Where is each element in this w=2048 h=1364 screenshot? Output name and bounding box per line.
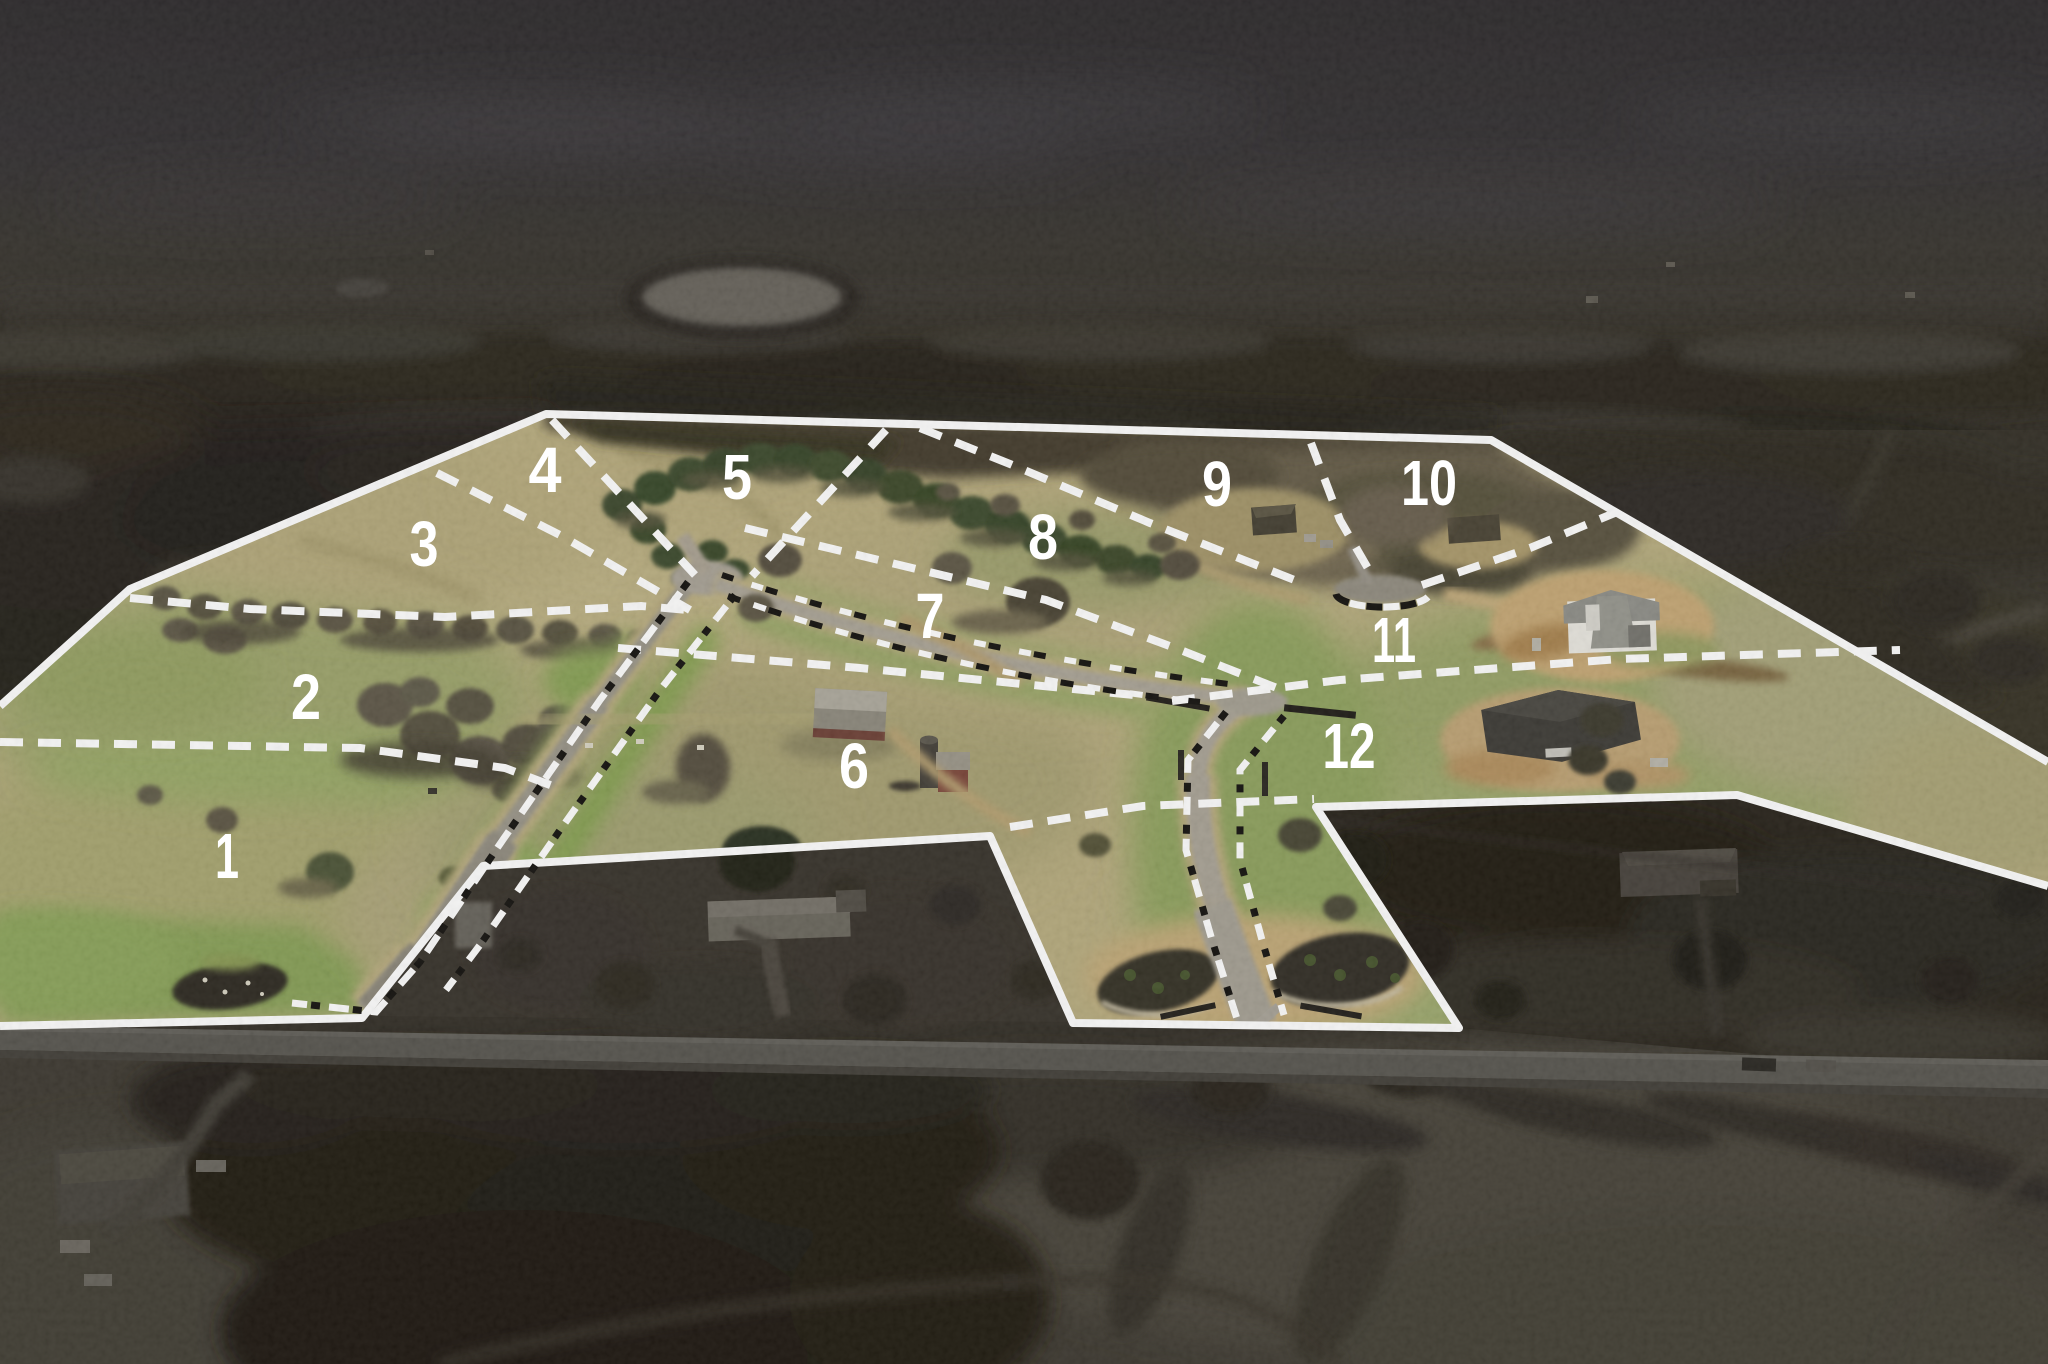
svg-text:9: 9 bbox=[1202, 448, 1232, 520]
svg-text:7: 7 bbox=[916, 580, 945, 652]
svg-text:5: 5 bbox=[722, 441, 752, 513]
svg-text:8: 8 bbox=[1028, 501, 1058, 573]
svg-text:3: 3 bbox=[410, 508, 439, 580]
svg-text:10: 10 bbox=[1401, 447, 1457, 519]
svg-text:12: 12 bbox=[1323, 710, 1376, 782]
svg-text:2: 2 bbox=[291, 661, 321, 733]
svg-text:4: 4 bbox=[529, 434, 562, 506]
svg-text:1: 1 bbox=[215, 820, 239, 892]
svg-text:11: 11 bbox=[1372, 604, 1416, 676]
svg-text:6: 6 bbox=[839, 730, 869, 802]
